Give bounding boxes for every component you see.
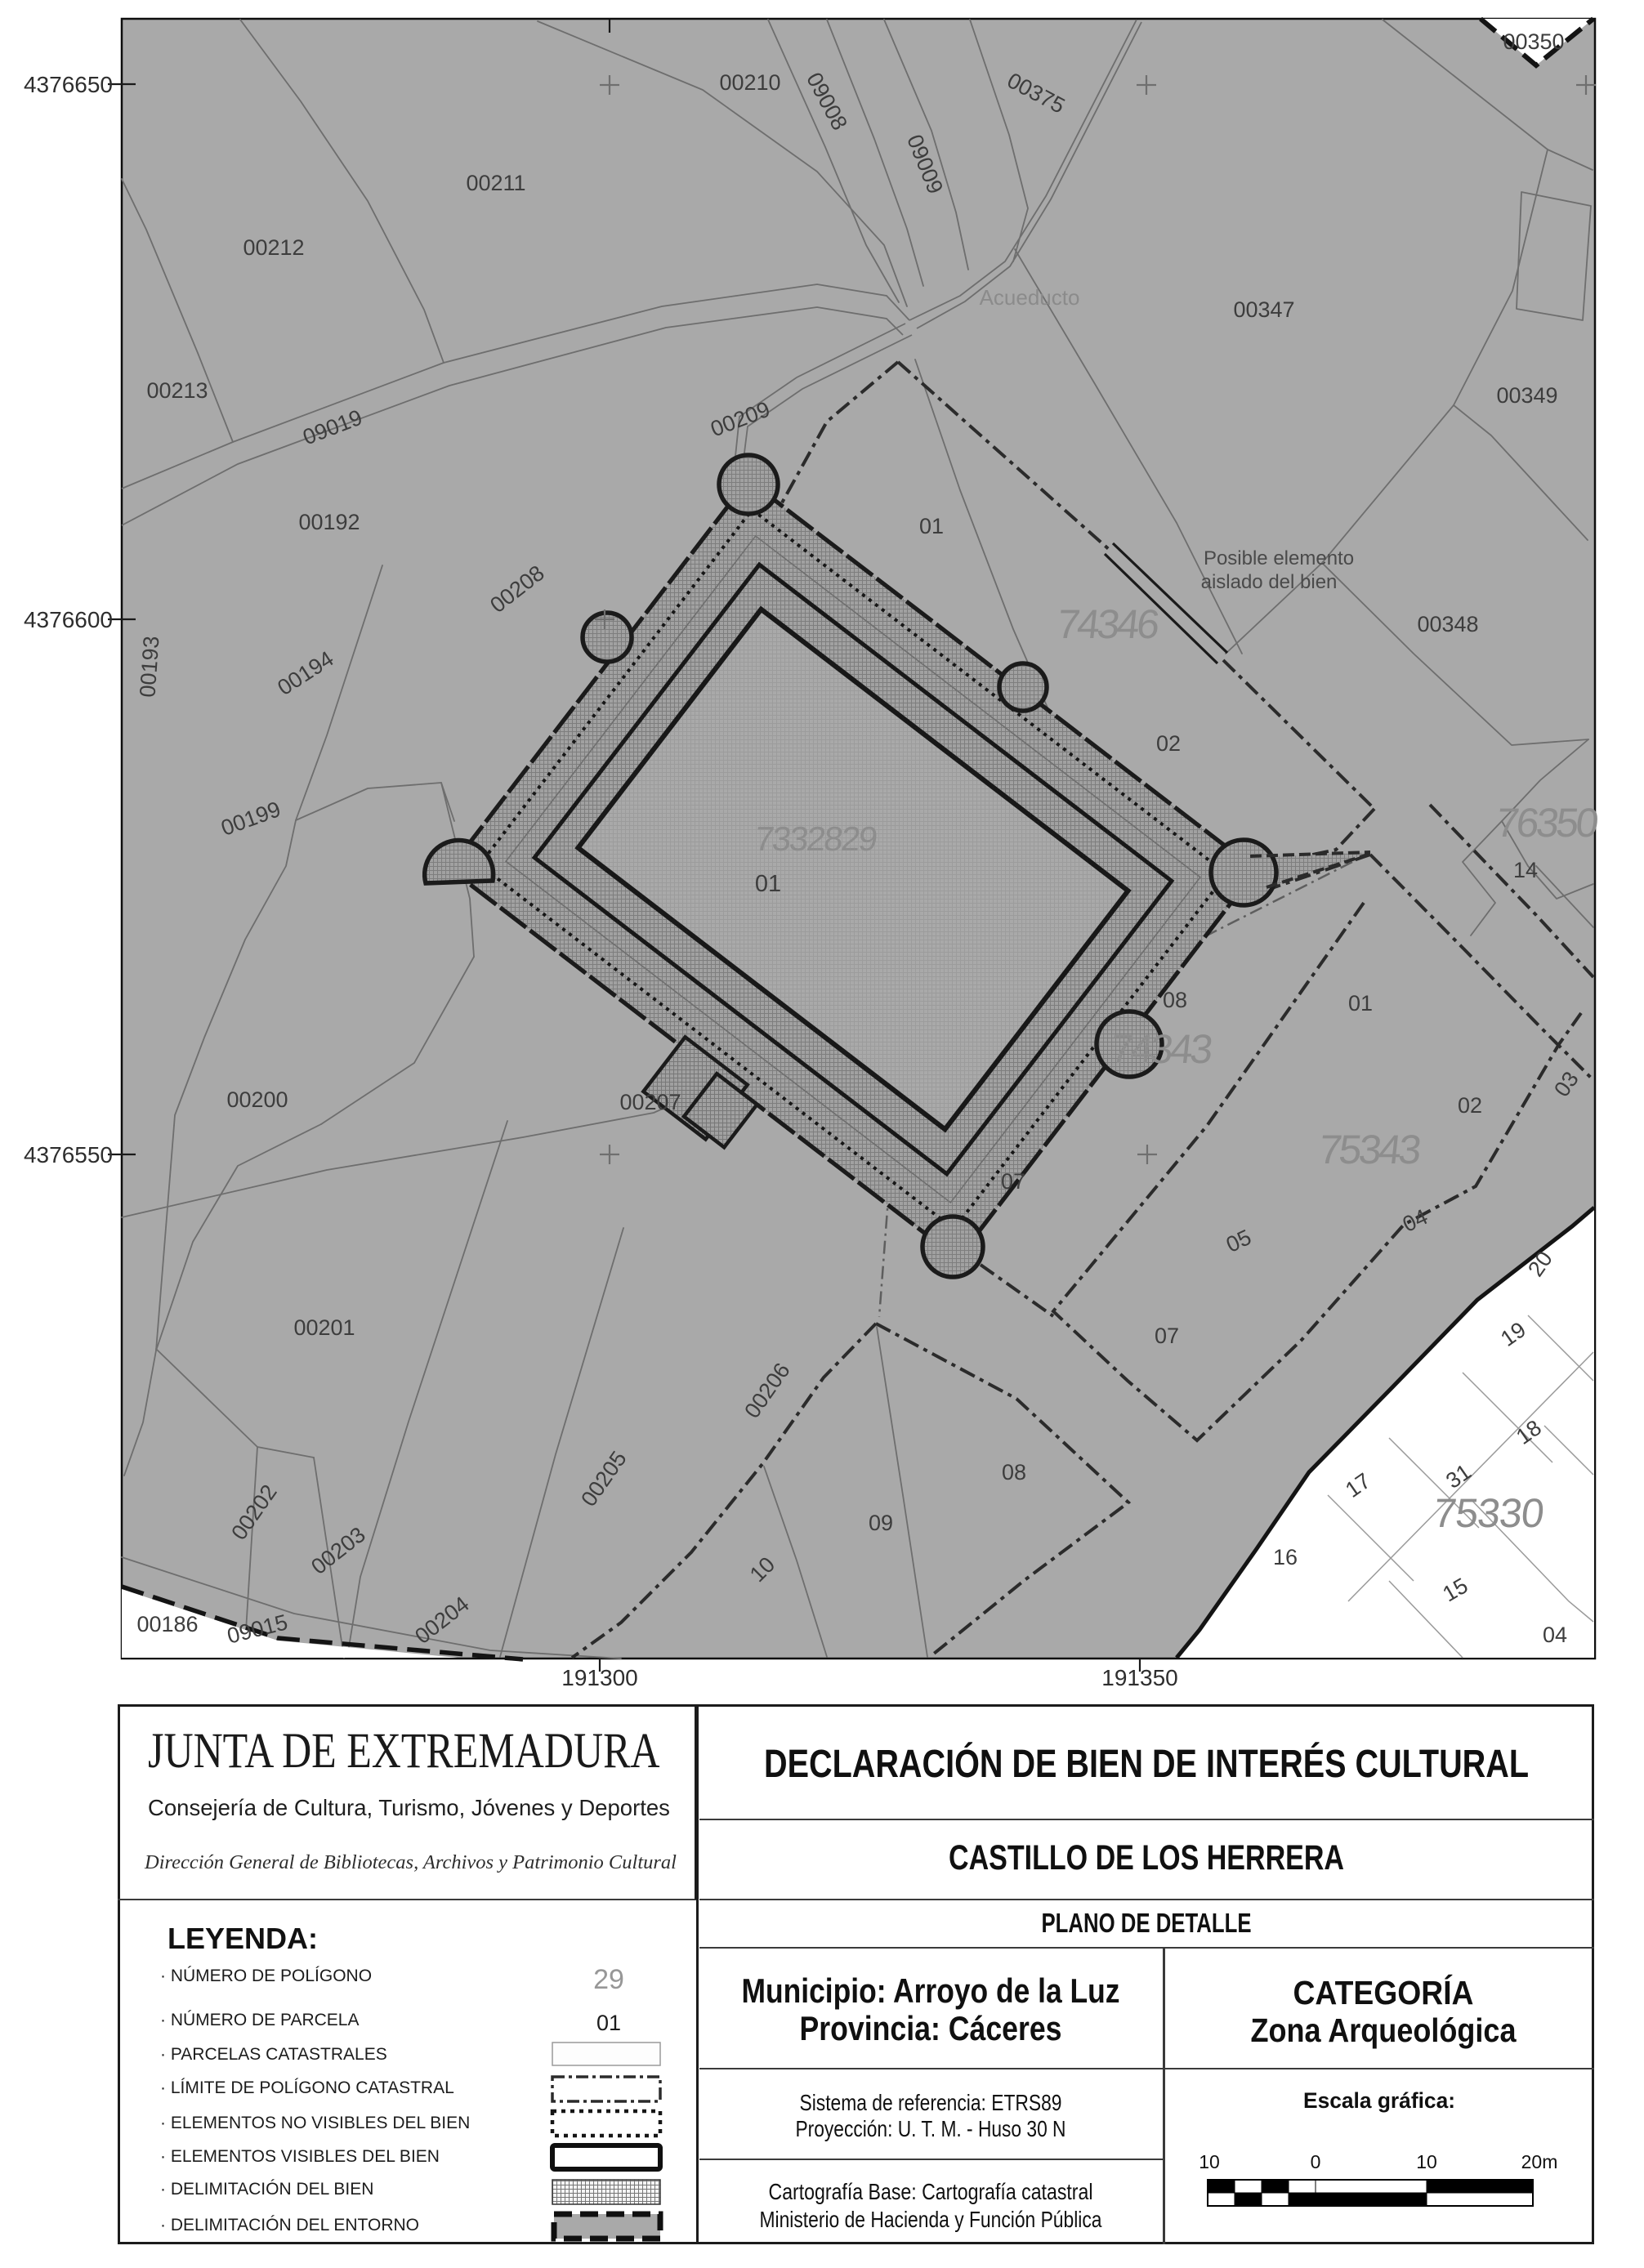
- svg-text:00192: 00192: [298, 510, 360, 534]
- svg-text:10: 10: [1199, 2151, 1220, 2172]
- svg-text:Provincia: Cáceres: Provincia: Cáceres: [800, 2009, 1062, 2047]
- svg-text:191300: 191300: [561, 1665, 637, 1690]
- svg-text:02: 02: [1458, 1093, 1482, 1118]
- svg-text:00207: 00207: [619, 1090, 681, 1114]
- svg-text:01: 01: [755, 871, 781, 897]
- svg-text:Acueducto: Acueducto: [980, 285, 1080, 310]
- svg-text:Posible elemento: Posible elemento: [1204, 547, 1354, 569]
- svg-text:Cartografía Base: Cartografía: Cartografía Base: Cartografía catastral: [769, 2179, 1093, 2204]
- svg-text:Ministerio de Hacienda y Funci: Ministerio de Hacienda y Función Pública: [760, 2207, 1102, 2232]
- svg-text:02: 02: [1156, 731, 1181, 756]
- svg-text:04: 04: [1543, 1623, 1567, 1647]
- svg-text:191350: 191350: [1101, 1665, 1177, 1690]
- svg-text:01: 01: [1348, 991, 1373, 1016]
- svg-text:07: 07: [1001, 1169, 1025, 1194]
- svg-text:Sistema de referencia: ETRS89: Sistema de referencia: ETRS89: [800, 2090, 1062, 2115]
- svg-text:74343: 74343: [1109, 1026, 1216, 1072]
- svg-text:00186: 00186: [136, 1612, 198, 1636]
- svg-text:20m: 20m: [1521, 2151, 1558, 2172]
- svg-text:aislado del bien: aislado del bien: [1201, 571, 1338, 593]
- svg-text:00210: 00210: [719, 70, 780, 95]
- svg-text:00213: 00213: [146, 378, 208, 403]
- svg-text:00347: 00347: [1233, 297, 1294, 322]
- svg-text:09: 09: [869, 1511, 893, 1535]
- svg-text:75330: 75330: [1432, 1490, 1547, 1536]
- svg-text:Escala gráfica:: Escala gráfica:: [1303, 2088, 1455, 2113]
- svg-text:4376600: 4376600: [24, 607, 113, 632]
- svg-text:07: 07: [1155, 1324, 1179, 1348]
- svg-text:10: 10: [1416, 2151, 1437, 2172]
- svg-text:00201: 00201: [293, 1315, 355, 1340]
- svg-text:00348: 00348: [1417, 612, 1478, 636]
- svg-text:14: 14: [1513, 858, 1538, 882]
- svg-text:Zona Arqueológica: Zona Arqueológica: [1251, 2011, 1517, 2049]
- svg-text:DECLARACIÓN DE BIEN DE INTERÉS: DECLARACIÓN DE BIEN DE INTERÉS CULTURAL: [764, 1741, 1529, 1786]
- svg-text:Proyección: U. T. M. - Huso 30: Proyección: U. T. M. - Huso 30 N: [796, 2116, 1066, 2141]
- svg-text:76350: 76350: [1494, 800, 1602, 846]
- svg-text:4376650: 4376650: [24, 72, 113, 97]
- svg-text:00212: 00212: [243, 235, 304, 260]
- svg-text:08: 08: [1002, 1460, 1026, 1484]
- svg-text:00200: 00200: [226, 1087, 288, 1112]
- svg-text:00193: 00193: [135, 635, 163, 698]
- svg-text:Municipio: Arroyo de la Luz: Municipio: Arroyo de la Luz: [742, 1971, 1120, 2010]
- svg-text:PLANO DE DETALLE: PLANO DE DETALLE: [1042, 1908, 1252, 1938]
- svg-text:16: 16: [1273, 1545, 1298, 1569]
- svg-text:CASTILLO DE LOS HERRERA: CASTILLO DE LOS HERRERA: [949, 1838, 1344, 1877]
- svg-text:00349: 00349: [1496, 383, 1557, 408]
- svg-text:00350: 00350: [1503, 29, 1564, 54]
- svg-text:CATEGORÍA: CATEGORÍA: [1293, 1974, 1474, 2011]
- svg-text:7332829: 7332829: [753, 819, 880, 858]
- svg-text:4376550: 4376550: [24, 1142, 113, 1167]
- svg-text:74346: 74346: [1055, 601, 1162, 647]
- svg-text:00211: 00211: [466, 171, 525, 195]
- svg-text:01: 01: [919, 514, 944, 538]
- svg-text:75343: 75343: [1317, 1127, 1424, 1172]
- svg-text:08: 08: [1163, 988, 1187, 1012]
- svg-text:0: 0: [1311, 2151, 1321, 2172]
